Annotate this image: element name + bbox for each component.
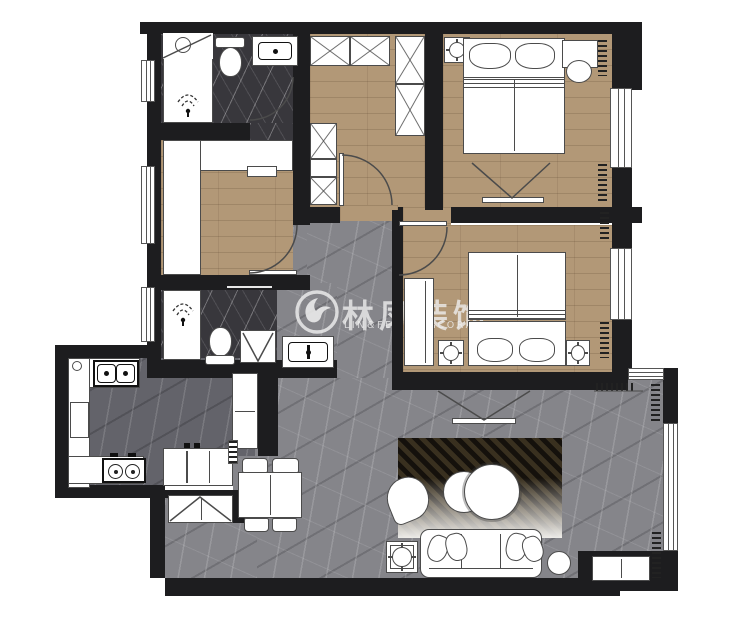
kitchen-sink [93,360,139,387]
wall-kitchen-left [55,345,68,498]
study-door-leaf [249,270,297,275]
wall-bay-top-corner [663,368,678,423]
closet-cabinet-left-2 [310,159,337,177]
curtain-bedroom2-bottom [600,322,609,358]
shower-head-icon [174,88,202,118]
wall-kitchen-top [55,345,147,358]
wall-below-closet-left [293,207,340,223]
faucet-icon [307,345,310,359]
bed1-center-line [514,80,515,151]
counter-divider-2 [209,451,210,483]
shoe-cabinet-divider [201,498,202,520]
wall-top-right-corner [612,22,642,90]
toilet-2-tank [205,355,235,365]
sink-2-vanity [282,336,334,368]
fridge-divider [235,411,255,412]
burner-right [125,464,140,479]
bed1-pillow-left [469,43,511,69]
counter-divider-1 [186,451,187,483]
burner-left [108,464,123,479]
window-living-top [628,368,664,380]
kitchen-counter-right [163,448,233,486]
side-table [547,551,571,575]
wardrobe-door-line [425,281,426,363]
bed2-pillow-right [519,338,555,362]
window-balcony [663,423,678,551]
bed2-nightstand-left [438,340,464,366]
wall-shelf [247,166,277,177]
wall-right-low [612,320,632,375]
curtain-living-right-top [651,384,660,424]
living-tv [452,418,516,424]
bed2-wardrobe [404,278,434,366]
wall-closet-bed1 [425,33,443,210]
wall-study-bottom [147,275,297,290]
dining-chair-bottom-right [272,518,297,532]
sink-basin-right [116,364,135,383]
bath2-glass-partition [227,286,272,288]
toilet-1-bowl [219,47,242,77]
curtain-bedroom1-bottom [598,164,607,204]
closet-cabinet-vert-1 [395,36,425,84]
dining-chair-top-right [272,458,299,473]
closet-cabinet-vert-2 [395,84,425,136]
closet-cabinet-top-2 [350,36,390,66]
shoe-cabinet [168,495,233,523]
wall-bath1-bottom [147,123,250,140]
closet-cabinet-top-1 [310,36,350,66]
balcony-cabinet-divider [621,559,622,578]
sofa-seat-line-2 [500,534,501,569]
closet-cabinet-left-1 [310,123,337,159]
window-left-3 [141,287,155,342]
window-left-1 [141,60,155,102]
sink-1 [252,36,298,66]
bed1-tv [482,197,544,203]
study-bed [163,140,201,275]
dining-table [238,472,302,518]
gas-stove [102,458,146,483]
counter-faucet-1 [184,443,190,448]
bed2-blanket-fold [469,310,565,321]
counter-faucet-2 [194,443,200,448]
wall-living-top [392,372,628,390]
sink-basin-left [97,364,116,383]
floor-drain [72,361,82,371]
dining-chair-top-left [242,458,268,473]
bed2-center-line [517,255,518,317]
window-bedroom-2 [610,248,632,320]
closet-cabinet-left-3 [310,177,337,205]
curtain-bedroom2-top [600,212,609,242]
wall-fridge-side [258,378,278,456]
shower-2 [163,290,201,360]
closet-door-leaf [339,153,344,206]
wall-bed2-left [392,210,403,390]
wall-lower-left [150,490,165,578]
sink-1-basin [258,42,292,60]
washing-machine [240,330,276,363]
study-door-gap-floor [293,225,307,275]
coffee-table-large [464,464,520,520]
bed1-table-lamp [566,60,592,83]
floor-plan: 林凤装饰 LIN&FENG DECORATION [0,0,740,631]
bed2-pillow-left [477,338,513,362]
toilet-2-bowl [209,327,232,357]
table-leaf-line [270,475,271,515]
kitchen-left-appliance [70,402,89,438]
floor-lamp [386,541,418,573]
wall-right-mid [612,168,632,250]
fridge [232,373,258,449]
bed1-blanket-fold [464,79,564,90]
shelf-basin [175,37,191,53]
balcony-cabinet [592,556,650,581]
window-bedroom-1 [610,88,632,168]
phoenix-swirl-logo-icon [294,289,340,335]
radiator [228,440,238,464]
sofa-front-line [429,568,533,569]
closet-door-gap-floor [340,205,398,221]
stove-knob-2 [128,453,136,457]
curtain-bedroom1-top [598,40,607,76]
wall-top [140,22,642,34]
window-left-2 [141,166,155,244]
bed1-pillow-right [515,43,555,69]
dining-chair-bottom-left [244,518,269,532]
bathroom-1-door-gap-floor [250,123,293,140]
shower-head-icon [169,297,197,327]
bed2-nightstand-right [566,340,590,366]
curtain-living-top [596,383,636,391]
stove-knob-1 [110,453,118,457]
wall-bottom [165,578,620,596]
curtain-living-right-bottom [652,532,661,578]
bedroom2-door-leaf [399,221,447,226]
